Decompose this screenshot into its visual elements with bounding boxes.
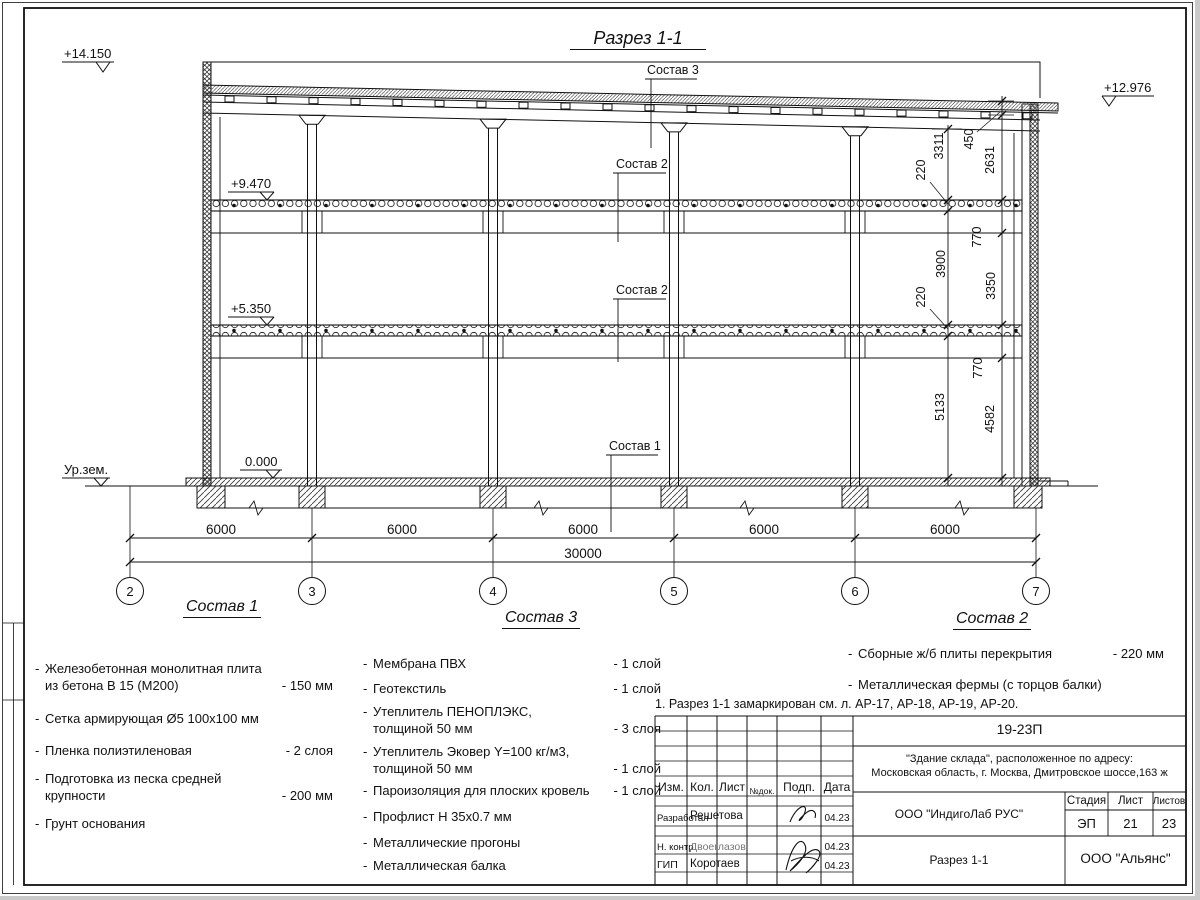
tb-stage-value: ЭП <box>1065 815 1108 832</box>
axis-bubble-6: 6 <box>841 583 869 600</box>
tb-object-line1: "Здание склада", расположенное по адресу… <box>853 752 1186 766</box>
tb-header-podp: Подп. <box>777 779 821 796</box>
level-roof-left: +14.150 <box>64 45 111 62</box>
tb-name-ncontrol: Двоеглазов <box>690 839 746 856</box>
composition-1-heading: Состав 1 <box>183 598 261 618</box>
dim-span-3: 6000 <box>553 521 613 538</box>
tb-header-izm: Изм. <box>655 779 687 796</box>
drawing-note: 1. Разрез 1-1 замаркирован см. л. АР-17,… <box>655 696 1018 713</box>
tb-sheet-value: 21 <box>1108 815 1153 832</box>
tb-date-developer: 04.23 <box>821 810 853 827</box>
tb-company: ООО "ИндигоЛаб РУС" <box>853 806 1065 823</box>
axis-bubble-5: 5 <box>660 583 688 600</box>
layer-label-floor-upper: Состав 2 <box>616 156 668 173</box>
dim-total: 30000 <box>548 545 618 562</box>
tb-doc-number: 19-23П <box>853 721 1186 738</box>
tb-role-gip: ГИП <box>657 857 678 874</box>
list-item: -Сетка армирующая Ø5 100х100 мм <box>35 710 333 727</box>
layer-label-ground-slab: Состав 1 <box>609 438 661 455</box>
list-item: -Пленка полиэтиленовая- 2 слоя <box>35 742 333 759</box>
tb-object-line2: Московская область, г. Москва, Дмитровск… <box>853 766 1186 780</box>
dim-5133: 5133 <box>933 377 947 437</box>
dim-3311: 3311 <box>932 116 946 176</box>
axis-bubble-2: 2 <box>116 583 144 600</box>
dim-span-4: 6000 <box>734 521 794 538</box>
tb-name-gip: Коротаев <box>690 856 740 873</box>
list-item: -Профлист Н 35х0.7 мм <box>363 808 661 825</box>
composition-list-3: -Мембрана ПВХ- 1 слой -Геотекстиль- 1 сл… <box>363 655 661 875</box>
layer-label-roof: Состав 3 <box>647 62 699 79</box>
tb-header-list: Лист <box>717 779 747 796</box>
level-roof-right: +12.976 <box>1104 79 1151 96</box>
list-item: -Металлическая балка <box>363 857 661 874</box>
composition-3-heading: Состав 3 <box>502 609 580 629</box>
tb-stage-label: Стадия <box>1065 793 1108 810</box>
list-item: -Утеплитель Эковер Y=100 кг/м3, толщиной… <box>363 743 661 777</box>
tb-name-developer: Решетова <box>690 808 743 825</box>
tb-sheets-value: 23 <box>1152 815 1186 832</box>
level-floor2: +9.470 <box>231 175 271 192</box>
dim-450: 450 <box>962 109 976 169</box>
list-item: -Металлическая фермы (с торцов балки) <box>848 676 1164 693</box>
tb-date-ncontrol: 04.23 <box>821 839 853 856</box>
dim-span-5: 6000 <box>915 521 975 538</box>
axis-bubble-4: 4 <box>479 583 507 600</box>
list-item: -Утеплитель ПЕНОПЛЭКС, толщиной 50 мм- 3… <box>363 703 661 737</box>
dim-220-lower: 220 <box>914 267 928 327</box>
tb-header-kol: Кол. <box>687 779 717 796</box>
dim-2631: 2631 <box>983 130 997 190</box>
axis-bubble-7: 7 <box>1022 583 1050 600</box>
tb-drawing-name: Разрез 1-1 <box>853 852 1065 869</box>
list-item: -Сборные ж/б плиты перекрытия- 220 мм <box>848 645 1164 662</box>
tb-date-gip: 04.23 <box>821 858 853 875</box>
list-item: -Грунт основания <box>35 815 333 832</box>
tb-header-dok: №док. <box>747 783 777 800</box>
layer-leaders <box>606 79 697 532</box>
list-item: -Геотекстиль- 1 слой <box>363 680 661 697</box>
dim-span-2: 6000 <box>372 521 432 538</box>
dim-3350: 3350 <box>984 256 998 316</box>
sheet-paper: Разрез 1-1 +14.150 +12.976 +9.470 +5.350… <box>0 0 1195 896</box>
composition-list-1: -Железобетонная монолитная плита из бето… <box>35 660 333 840</box>
tb-sheet-label: Лист <box>1108 793 1153 810</box>
dim-4582: 4582 <box>983 389 997 449</box>
dim-span-1: 6000 <box>191 521 251 538</box>
drawing-sheet-page: Разрез 1-1 +14.150 +12.976 +9.470 +5.350… <box>0 0 1200 900</box>
composition-2-heading: Состав 2 <box>953 610 1031 630</box>
list-item: -Пароизоляция для плоских кровель- 1 сло… <box>363 782 661 799</box>
dim-3900: 3900 <box>934 234 948 294</box>
list-item: -Подготовка из песка средней крупности- … <box>35 770 333 804</box>
drawing-title: Разрез 1-1 <box>570 30 706 50</box>
dim-220-upper: 220 <box>914 140 928 200</box>
axis-bubble-3: 3 <box>298 583 326 600</box>
level-floor1: +5.350 <box>231 300 271 317</box>
dim-770-upper: 770 <box>970 207 984 267</box>
tb-header-data: Дата <box>821 779 853 796</box>
level-zero: 0.000 <box>245 453 278 470</box>
tb-sheets-label: Листов <box>1152 793 1186 810</box>
layer-label-floor-lower: Состав 2 <box>616 282 668 299</box>
list-item: -Железобетонная монолитная плита из бето… <box>35 660 333 694</box>
ground-level-label: Ур.зем. <box>64 461 108 478</box>
signature-scrawls <box>786 807 820 873</box>
tb-org: ООО "Альянс" <box>1065 850 1186 867</box>
list-item: -Мембрана ПВХ- 1 слой <box>363 655 661 672</box>
list-item: -Металлические прогоны <box>363 834 661 851</box>
